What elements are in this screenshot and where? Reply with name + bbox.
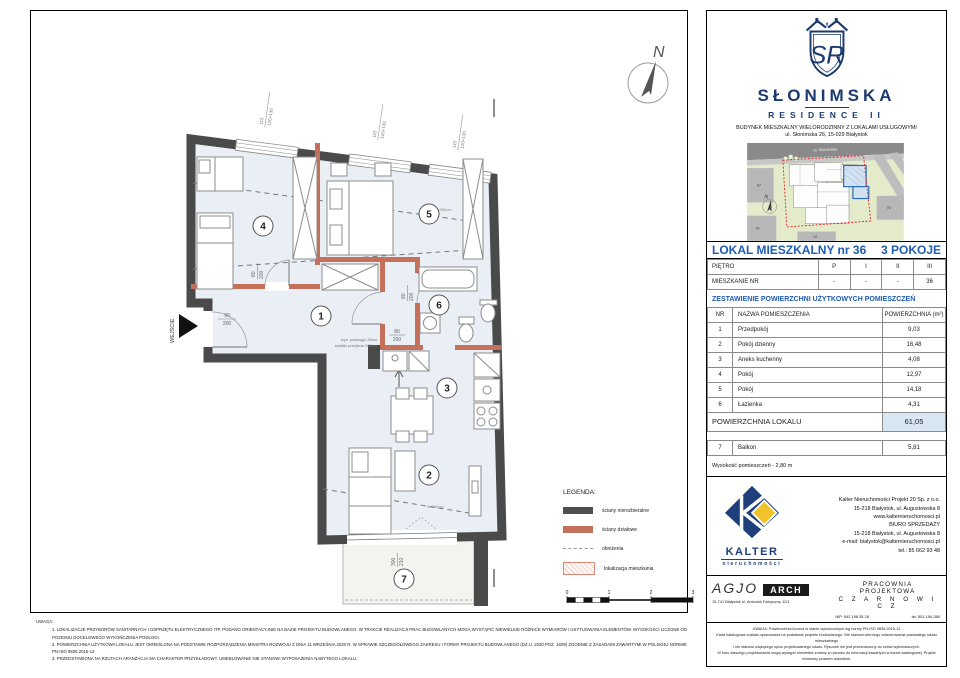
scale-bar: 0 1 2 3 xyxy=(563,589,699,606)
legend-item: lokalizacja mieszkania xyxy=(563,562,683,575)
svg-text:1: 1 xyxy=(608,590,611,596)
street-label: ul. Słonimska xyxy=(813,146,837,152)
svg-text:115: 115 xyxy=(372,130,378,138)
site-map: ul. Słonimska IV IV IV IV xyxy=(707,143,944,241)
room-number: 2 xyxy=(426,471,432,482)
table-row: 1 Przedpokój 9,03 xyxy=(708,322,946,337)
table-row: 4 Pokój 12,97 xyxy=(708,367,946,382)
kalter-block: KALTER nieruchomości Kalter Nieruchomośc… xyxy=(707,476,946,575)
window-dim-label: 115 120+130 xyxy=(451,114,469,151)
studio-nip: NIP: 542 198 35 28 xyxy=(835,614,869,619)
contact-line: 15-218 Białystok, ul. Augustowska 8 xyxy=(797,505,940,513)
svg-text:wys. podciągu 28cm: wys. podciągu 28cm xyxy=(341,337,378,342)
svg-text:2: 2 xyxy=(650,590,653,596)
entrance-arrow-icon: WEJŚCIE xyxy=(168,314,198,343)
disclaimer: UWAGA: Powierzchnia liczona w stanie wyk… xyxy=(707,622,946,666)
wall-swatch xyxy=(563,507,593,514)
svg-text:80: 80 xyxy=(401,293,407,299)
partition-swatch xyxy=(563,526,593,533)
contact-line: 15-218 Białystok, ul. Augustowska 8 xyxy=(797,530,940,538)
svg-text:200: 200 xyxy=(409,292,415,301)
building-description: BUDYNEK MIESZKALNY WIELORODZINNY Z LOKAL… xyxy=(707,125,946,131)
svg-text:3: 3 xyxy=(692,590,695,596)
beam-note: wys. podciągu 28cm światło przejścia 260… xyxy=(335,337,378,348)
contact-line: e-mail: bialystok@kalternieruchomosci.pl xyxy=(797,538,940,546)
table-row: 5 Pokój 14,18 xyxy=(708,382,946,397)
svg-text:90: 90 xyxy=(224,313,230,319)
kalter-contact: Kalter Nieruchomości Projekt 20 Sp. z o.… xyxy=(797,496,940,555)
agio-logo: AGJO ARCH xyxy=(712,580,824,596)
total-row: POWIERZCHNIA LOKALU 61,05 xyxy=(708,412,946,431)
studio-name-line1: PRACOWNIA PROJEKTOWA xyxy=(835,581,940,595)
designers-row: AGJO ARCH 15-741 Białystok ul. Antoniuk … xyxy=(707,575,946,622)
table-header-row: NR NAZWA POMIESZCZENIA POWIERZCHNIA (m²) xyxy=(708,307,946,322)
svg-text:120+130: 120+130 xyxy=(460,130,467,149)
svg-text:0: 0 xyxy=(566,590,569,596)
room-number: 4 xyxy=(260,222,266,233)
table-row: PIĘTRO P I II III xyxy=(708,259,946,274)
svg-text:80: 80 xyxy=(394,329,400,335)
north-label: N xyxy=(653,44,665,61)
room-number: 5 xyxy=(426,210,432,221)
building-address: ul. Słonimska 26, 15-029 Białystok xyxy=(707,132,946,138)
table-gap xyxy=(707,432,946,440)
contact-line: www.kalternieruchomosci.pl xyxy=(797,513,940,521)
arch-badge: ARCH xyxy=(763,584,809,596)
svg-text:IV: IV xyxy=(756,226,760,231)
agio-name: AGJO xyxy=(712,580,758,596)
window-dim-label: 115 120+130 xyxy=(258,91,276,128)
studio-block: PRACOWNIA PROJEKTOWA C Z A R N O W I C Z… xyxy=(829,576,946,622)
agio-address: 15-741 Białystok ul. Antoniuk Fabryczny … xyxy=(712,599,824,604)
svg-text:IV: IV xyxy=(757,183,761,188)
balcony-table: 7 Balkon 5,81 xyxy=(707,440,946,456)
studio-name-line2: C Z A R N O W I C Z xyxy=(835,596,940,610)
location-swatch xyxy=(563,562,595,575)
uwaga-item: 3. PRZEDSTAWIONA NA RZUTACH ARANŻACJA MA… xyxy=(36,655,691,662)
areas-heading: ZESTAWIENIE POWIERZCHNI UŻYTKOWYCH POMIE… xyxy=(707,290,946,307)
room-number: 6 xyxy=(436,301,442,312)
contact-line: BIURO SPRZEDAŻY xyxy=(797,521,940,529)
kalter-name: KALTER xyxy=(713,546,791,558)
kalter-tagline: nieruchomości xyxy=(721,559,783,567)
north-arrow-icon: N xyxy=(628,44,668,103)
svg-text:SR: SR xyxy=(809,42,844,70)
svg-text:115: 115 xyxy=(452,140,458,148)
svg-text:200: 200 xyxy=(259,270,265,279)
svg-text:120+130: 120+130 xyxy=(267,107,274,126)
svg-text:IV: IV xyxy=(813,234,817,239)
floor-table: PIĘTRO P I II III MIESZKANIE NR - - - 36 xyxy=(707,259,946,290)
contact-line: Kalter Nieruchomości Projekt 20 Sp. z o.… xyxy=(797,496,940,504)
room-number: 7 xyxy=(401,575,407,586)
studio-ids: NIP: 542 198 35 28 tel. 501-154-380 xyxy=(835,614,940,619)
svg-text:80: 80 xyxy=(251,271,257,277)
table-row: 2 Pokój dzienny 16,48 xyxy=(708,337,946,352)
uwaga-title: UWAGA: xyxy=(36,618,691,625)
svg-text:200: 200 xyxy=(223,321,232,327)
ceiling-drop-swatch xyxy=(563,548,593,549)
beam-pillar xyxy=(368,345,380,369)
agio-block: AGJO ARCH 15-741 Białystok ul. Antoniuk … xyxy=(707,576,829,622)
table-row: 6 Łazienka 4,31 xyxy=(708,397,946,412)
svg-text:N: N xyxy=(764,195,768,201)
uwaga-item: 1. LOKALIZACJE PRZYBORÓW SANITARNYCH I O… xyxy=(36,626,691,641)
ceiling-height-note: h=260cm xyxy=(427,504,444,509)
svg-text:światło przejścia 260cm: światło przejścia 260cm xyxy=(335,343,378,348)
svg-text:300: 300 xyxy=(391,557,397,566)
table-row: 7 Balkon 5,81 xyxy=(708,440,946,455)
svg-text:115: 115 xyxy=(259,117,265,125)
kalter-logo-icon xyxy=(724,485,780,539)
floorplan-datasheet: { "colors": { "brand_navy": "#1c3a6e", "… xyxy=(0,0,960,678)
room-number: 1 xyxy=(318,312,324,323)
height-note: Wysokość pomieszczeń - 2,80 m xyxy=(707,456,946,476)
right-wall-extension xyxy=(474,534,488,606)
svg-text:IV: IV xyxy=(887,205,891,210)
legend-item: obniżenia xyxy=(563,543,683,554)
disclaimer-line: W toku dalszego projektowania mogą wystą… xyxy=(712,650,941,662)
legend: LEGENDA: ściany nierozbieralne ściany dz… xyxy=(563,489,683,606)
disclaimer-line: i nie stanowi wiążącego opisu projektowa… xyxy=(712,644,941,650)
uwaga-notes: UWAGA: 1. LOKALIZACJE PRZYBORÓW SANITARN… xyxy=(36,618,691,663)
contact-line: tel.: 85 662 93 48 xyxy=(797,547,940,555)
brand-logo-icon: II SR xyxy=(782,16,872,80)
svg-text:120+130: 120+130 xyxy=(380,120,387,139)
floor-plan-sheet: N h=260cm h=260cm xyxy=(30,10,688,613)
legend-item: ściany działowe xyxy=(563,524,683,535)
info-panel: II SR SŁONIMSKA RESIDENCE II BUDYNEK MIE… xyxy=(706,10,947,667)
legend-title: LEGENDA: xyxy=(563,489,683,496)
disclaimer-line: Karta katalogowa została opracowana na p… xyxy=(712,632,941,644)
entrance-label: WEJŚCIE xyxy=(168,318,176,343)
window-dim-label: 115 120+130 xyxy=(371,104,389,141)
legend-item: ściany nierozbieralne xyxy=(563,505,683,516)
brand-name: SŁONIMSKA xyxy=(707,86,946,106)
room-number: 3 xyxy=(444,384,450,395)
table-row: 3 Aneks kuchenny 4,08 xyxy=(708,352,946,367)
studio-tel: tel. 501-154-380 xyxy=(912,614,940,619)
unit-header: LOKAL MIESZKALNY nr 36 3 POKOJE xyxy=(707,241,946,259)
brand-subtitle: RESIDENCE II xyxy=(707,110,946,120)
brand-block: II SR SŁONIMSKA RESIDENCE II BUDYNEK MIE… xyxy=(707,11,946,138)
areas-table: NR NAZWA POMIESZCZENIA POWIERZCHNIA (m²)… xyxy=(707,307,946,432)
svg-text:210: 210 xyxy=(399,557,405,566)
unit-title: LOKAL MIESZKALNY nr 36 xyxy=(712,243,866,257)
table-row: MIESZKANIE NR - - - 36 xyxy=(708,274,946,289)
uwaga-item: 2. POWIERZCHNIA UŻYTKOWA LOKALU JEST OKR… xyxy=(36,641,691,656)
kalter-logo: KALTER nieruchomości xyxy=(713,485,791,567)
unit-type: 3 POKOJE xyxy=(881,243,941,257)
brand-rule xyxy=(805,107,849,108)
svg-text:200: 200 xyxy=(393,337,402,343)
